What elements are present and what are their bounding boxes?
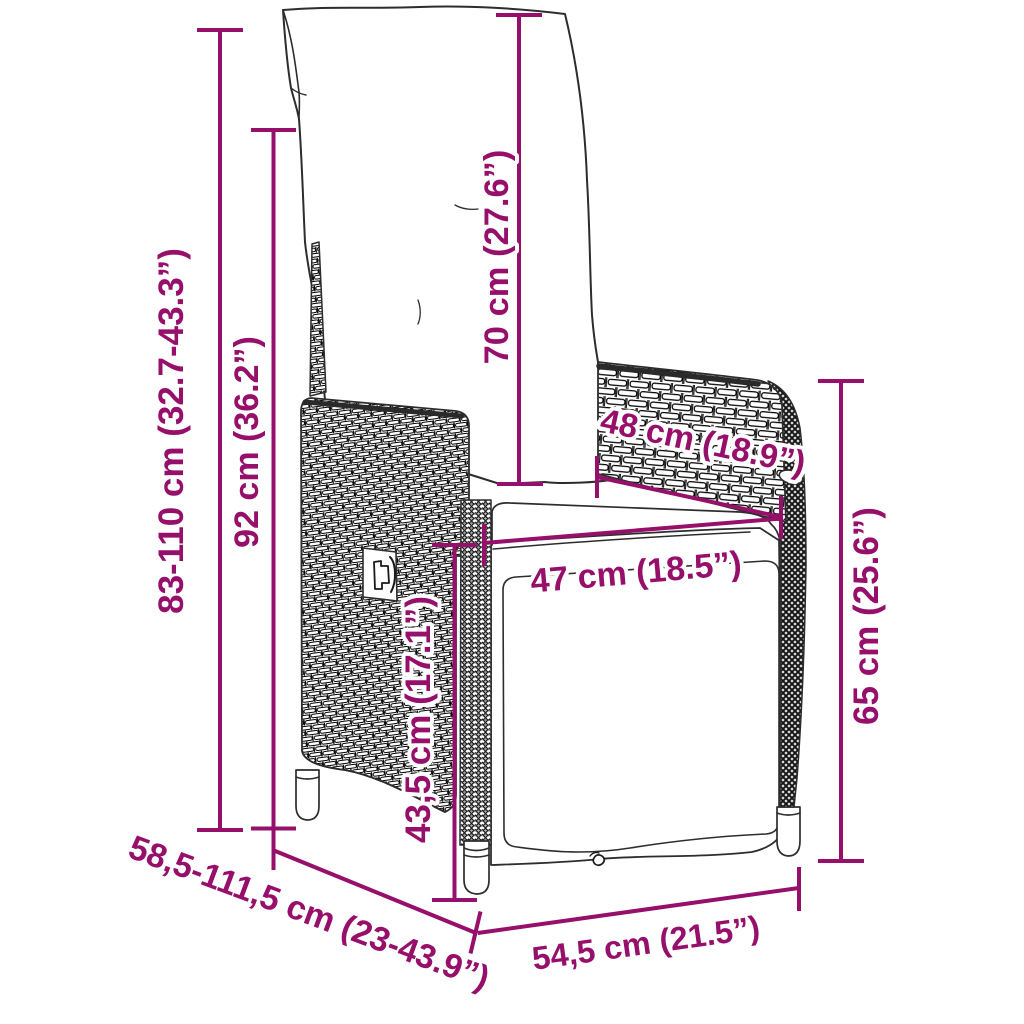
svg-text:43,5 cm (17.1”): 43,5 cm (17.1”) — [399, 596, 438, 843]
svg-text:65 cm (25.6”): 65 cm (25.6”) — [847, 507, 886, 725]
svg-text:92 cm (36.2”): 92 cm (36.2”) — [228, 336, 266, 548]
svg-text:83-110 cm (32.7-43.3”): 83-110 cm (32.7-43.3”) — [152, 248, 191, 614]
svg-text:70 cm (27.6”): 70 cm (27.6”) — [478, 150, 516, 365]
